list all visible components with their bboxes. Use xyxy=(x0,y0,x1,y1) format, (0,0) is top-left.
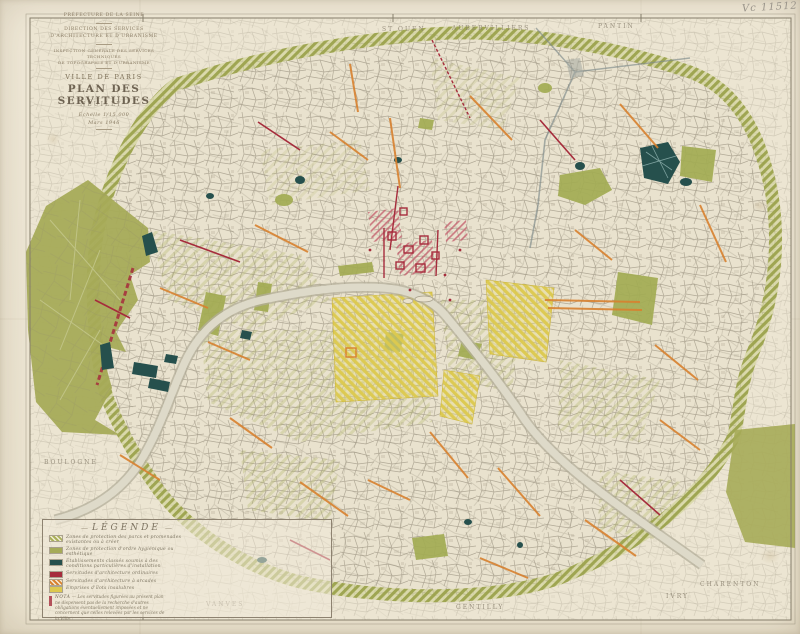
nota-red-mark xyxy=(49,596,52,606)
divider xyxy=(96,68,112,69)
park-small-north xyxy=(538,83,552,93)
ile-de-la-cite xyxy=(415,296,433,302)
map-scale: Échelle 1/15.000 xyxy=(36,112,172,118)
divider xyxy=(96,44,112,45)
map-title: PLAN DES SERVITUDES xyxy=(36,83,172,107)
legend-label: Zones de protection d'ordre hygiénique o… xyxy=(66,547,184,558)
paper-sheet: ST OUEN AUBERVILLIERS PANTIN NEUILLY BOU… xyxy=(0,0,800,634)
square-montmartre xyxy=(418,118,434,130)
legend-title: LÉGENDE xyxy=(77,523,326,533)
title-block: PRÉFECTURE DE LA SEINE DIRECTION DES SER… xyxy=(36,13,172,133)
legend-label: Servitudes d'architecture à arcades xyxy=(66,579,156,584)
legend-swatch-etablissements xyxy=(50,560,62,565)
legend-swatch-hygiene xyxy=(50,548,62,553)
label-gentilly: GENTILLY xyxy=(456,604,504,611)
direction-line-1: DIRECTION DES SERVICES xyxy=(36,27,172,34)
map-date: Mars 1946 xyxy=(36,120,172,126)
nota-text: — Les servitudes figurées au présent pla… xyxy=(55,595,164,621)
parc-montsouris xyxy=(412,534,448,560)
inspection-line-1: INSPECTION GÉNÉRALE DES SERVICES TECHNIQ… xyxy=(36,48,172,60)
prefecture-line: PRÉFECTURE DE LA SEINE xyxy=(36,13,172,20)
label-st-ouen: ST OUEN xyxy=(382,26,426,33)
legend-label: Emprises d'îlots insalubres xyxy=(66,586,134,591)
label-ivry: IVRY xyxy=(666,593,689,600)
label-aubervilliers: AUBERVILLIERS xyxy=(451,25,531,32)
legend-swatch-insalubres xyxy=(50,587,62,592)
legend-swatch-parks xyxy=(50,536,62,541)
legend-item: Établissements classés soumis à des cond… xyxy=(49,559,326,570)
park-telegraphe xyxy=(680,146,716,182)
legend-item: Emprises d'îlots insalubres xyxy=(49,586,326,592)
ile-st-louis xyxy=(403,299,413,304)
legend-label: Zones de protection des parcs et promena… xyxy=(66,535,184,546)
nota-word: NOTA xyxy=(55,595,70,600)
legend-item: Zones de protection d'ordre hygiénique o… xyxy=(49,547,326,558)
label-boulogne: BOULOGNE xyxy=(44,459,98,466)
legend-swatch-servitude-rouge xyxy=(50,572,62,577)
legend-nota: NOTA — Les servitudes figurées au présen… xyxy=(49,595,326,622)
legend-item: Servitudes d'architecture à arcades xyxy=(49,579,326,585)
legend-label: Établissements classés soumis à des cond… xyxy=(66,559,184,570)
direction-line-2: D'ARCHITECTURE ET D'URBANISME xyxy=(36,34,172,41)
parc-monceau xyxy=(275,194,293,206)
label-pantin: PANTIN xyxy=(598,23,635,30)
legend-box: LÉGENDE Zones de protection des parcs et… xyxy=(42,519,332,618)
divider xyxy=(96,129,112,130)
city-name: VILLE DE PARIS xyxy=(36,73,172,81)
label-charenton: CHARENTON xyxy=(700,581,760,588)
legend-label: Servitudes d'architecture ordinaires xyxy=(66,571,158,576)
legend-item: Zones de protection des parcs et promena… xyxy=(49,535,326,546)
legend-swatch-servitude-orange xyxy=(50,580,62,585)
legend-item: Servitudes d'architecture ordinaires xyxy=(49,571,326,577)
divider xyxy=(96,23,112,24)
inspection-line-2: DE TOPOGRAPHIE ET D'URBANISME xyxy=(36,60,172,66)
